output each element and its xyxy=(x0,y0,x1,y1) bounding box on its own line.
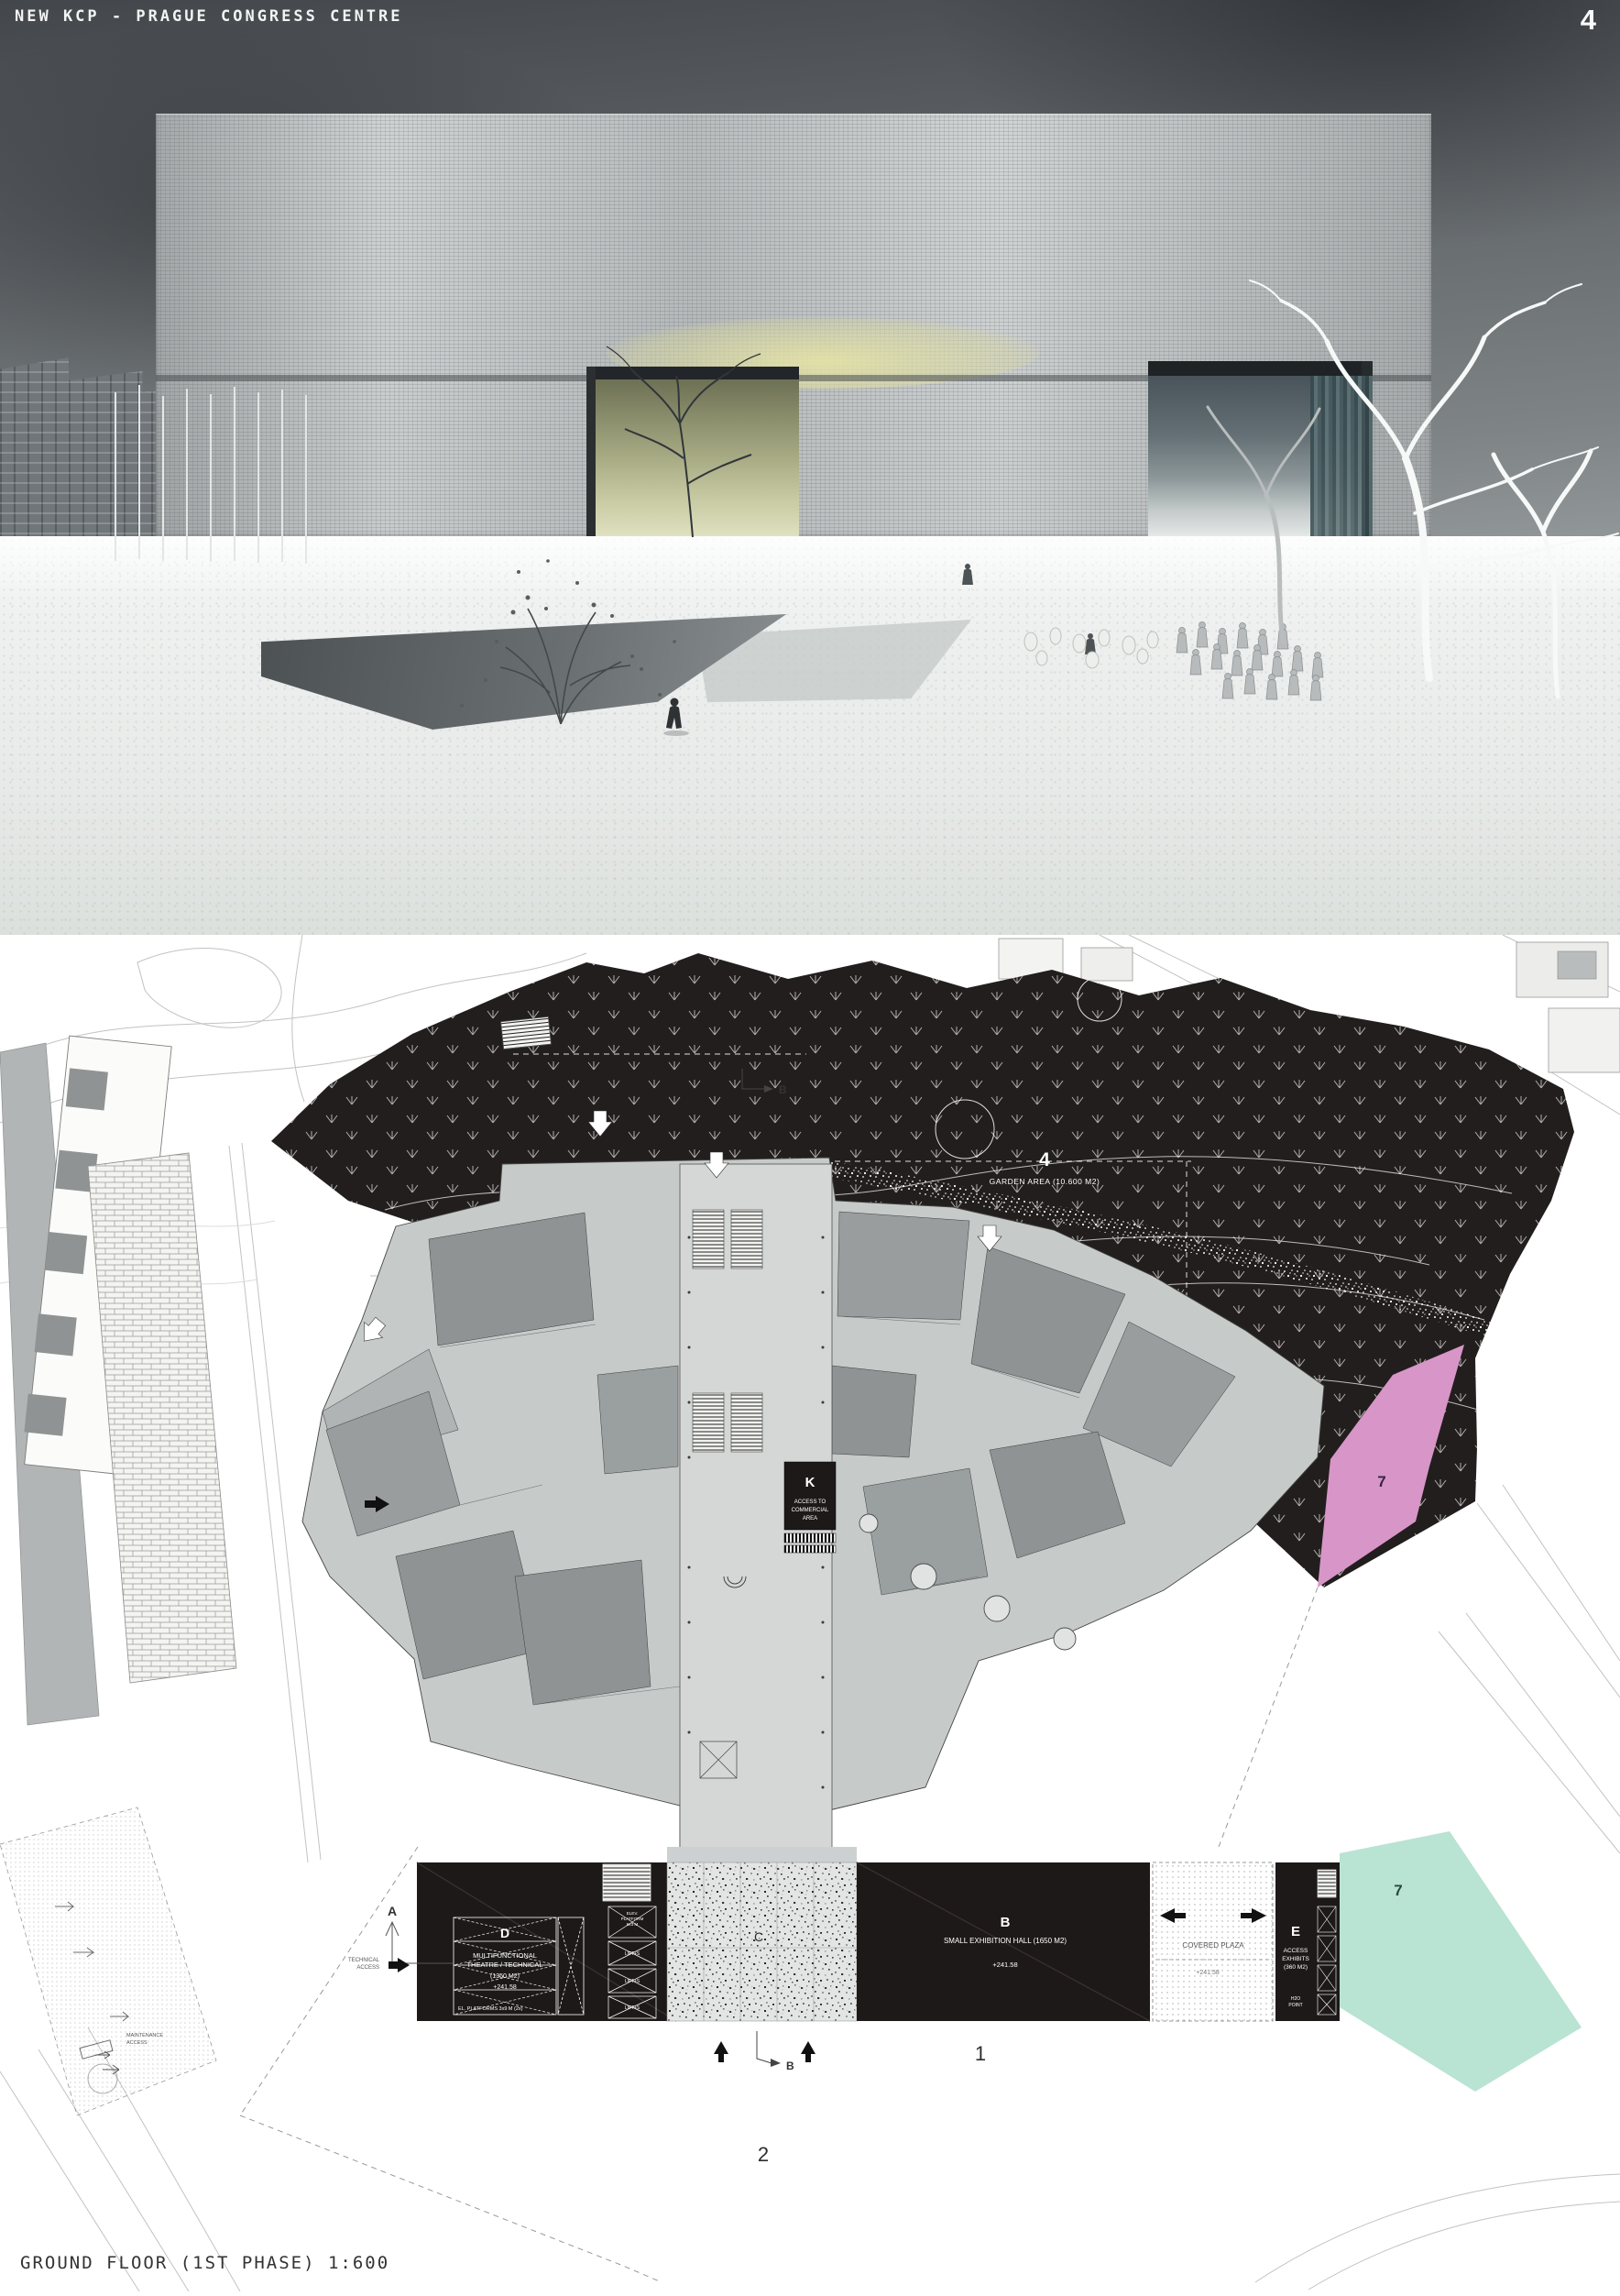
k-letter: K xyxy=(805,1475,815,1490)
drawing-caption: GROUND FLOOR (1ST PHASE) 1:600 xyxy=(20,2253,389,2273)
walking-figure xyxy=(663,698,689,737)
svg-text:POINT: POINT xyxy=(1288,2003,1302,2008)
svg-text:B: B xyxy=(1001,1915,1011,1930)
svg-text:TECHNICAL: TECHNICAL xyxy=(348,1958,380,1963)
k-access-box: K ACCESS TO COMMERCIAL AREA xyxy=(784,1462,836,1553)
svg-text:PLATFORM: PLATFORM xyxy=(621,1917,644,1921)
ground-floor-plan: 4 GARDEN AREA (10.600 M2) 7 7 xyxy=(0,935,1620,2291)
distant-figure xyxy=(962,564,973,585)
block-b: B SMALL EXHIBITION HALL (1650 M2) +241.5… xyxy=(857,1862,1150,2021)
svg-text:THEATRE / TECHNICAL: THEATRE / TECHNICAL xyxy=(466,1961,542,1969)
svg-text:MULTIFUNCTIONAL: MULTIFUNCTIONAL xyxy=(473,1951,537,1960)
svg-text:COVERED PLAZA: COVERED PLAZA xyxy=(1182,1941,1244,1950)
svg-text:+241.58: +241.58 xyxy=(992,1961,1017,1969)
hero-rendering: NEW KCP - PRAGUE CONGRESS CENTRE 4 xyxy=(0,0,1620,935)
svg-text:LIFT+S: LIFT+S xyxy=(625,1951,640,1957)
svg-text:EL. PLATFORMS 3x9 M (2x): EL. PLATFORMS 3x9 M (2x) xyxy=(458,2006,523,2012)
zone7-pink-label: 7 xyxy=(1377,1473,1385,1490)
page-number: 4 xyxy=(1581,4,1596,37)
flag-poles xyxy=(115,385,306,564)
statue-group xyxy=(1177,622,1323,701)
area-1-label: 1 xyxy=(975,2042,986,2065)
plan-drawing: 4 GARDEN AREA (10.600 M2) 7 7 xyxy=(0,935,1620,2291)
svg-text:E: E xyxy=(1291,1924,1300,1939)
svg-text:(1350 M2): (1350 M2) xyxy=(490,1973,520,1980)
svg-text:AREA: AREA xyxy=(803,1516,817,1522)
white-trees xyxy=(1208,280,1618,697)
svg-text:B: B xyxy=(786,2060,794,2072)
svg-text:B: B xyxy=(779,1083,787,1096)
svg-text:ACCESS: ACCESS xyxy=(1284,1948,1308,1954)
entrance-tree xyxy=(607,346,761,537)
svg-text:ACCESS TO: ACCESS TO xyxy=(794,1500,826,1505)
svg-text:EXHIBITS: EXHIBITS xyxy=(1282,1956,1309,1962)
render-overlay xyxy=(0,0,1620,935)
svg-text:MAINTENANCE: MAINTENANCE xyxy=(126,2033,163,2038)
zone7-green-label: 7 xyxy=(1394,1882,1402,1899)
covered-plaza: COVERED PLAZA +241.58 xyxy=(1153,1862,1273,2021)
brick-paved-band xyxy=(88,1153,236,1683)
distant-figure xyxy=(1085,633,1096,654)
svg-text:+241.58: +241.58 xyxy=(1196,1970,1220,1976)
svg-text:LIFT+S: LIFT+S xyxy=(625,2005,640,2011)
garden-number: 4 xyxy=(1039,1149,1050,1170)
svg-text:+241.58: +241.58 xyxy=(493,1984,517,1991)
section-marker-b-bottom: B xyxy=(757,2031,794,2072)
technical-access-label: TECHNICAL ACCESS xyxy=(348,1958,410,1972)
svg-text:A: A xyxy=(388,1904,397,1918)
svg-text:LIFT+S: LIFT+S xyxy=(625,1979,640,1984)
garden-bridge xyxy=(501,1016,552,1049)
svg-text:(360 M2): (360 M2) xyxy=(1284,1964,1308,1971)
up-arrows xyxy=(714,2041,815,2062)
garden-label: GARDEN AREA (10.600 M2) xyxy=(990,1177,1100,1186)
block-c: C xyxy=(667,1862,857,2021)
block-e: E ACCESS EXHIBITS (360 M2) H2O POINT xyxy=(1275,1862,1340,2021)
svg-text:COMMERCIAL: COMMERCIAL xyxy=(792,1508,829,1513)
svg-text:H2O: H2O xyxy=(1291,1996,1300,2002)
board-title: NEW KCP - PRAGUE CONGRESS CENTRE xyxy=(15,7,403,26)
svg-text:6x3 M: 6x3 M xyxy=(627,1922,639,1927)
granite-cap xyxy=(667,1847,857,1862)
svg-text:ACCESS: ACCESS xyxy=(356,1965,379,1971)
svg-text:C: C xyxy=(754,1929,763,1944)
svg-text:SMALL EXHIBITION HALL (1650 M2: SMALL EXHIBITION HALL (1650 M2) xyxy=(944,1937,1067,1945)
svg-text:ACCESS: ACCESS xyxy=(126,2040,148,2046)
svg-text:ELEV.: ELEV. xyxy=(627,1911,639,1916)
area-2-label: 2 xyxy=(758,2143,769,2166)
svg-text:D: D xyxy=(500,1926,509,1940)
zone7-green-wedge xyxy=(1340,1831,1582,2092)
bare-shrub xyxy=(460,559,676,724)
